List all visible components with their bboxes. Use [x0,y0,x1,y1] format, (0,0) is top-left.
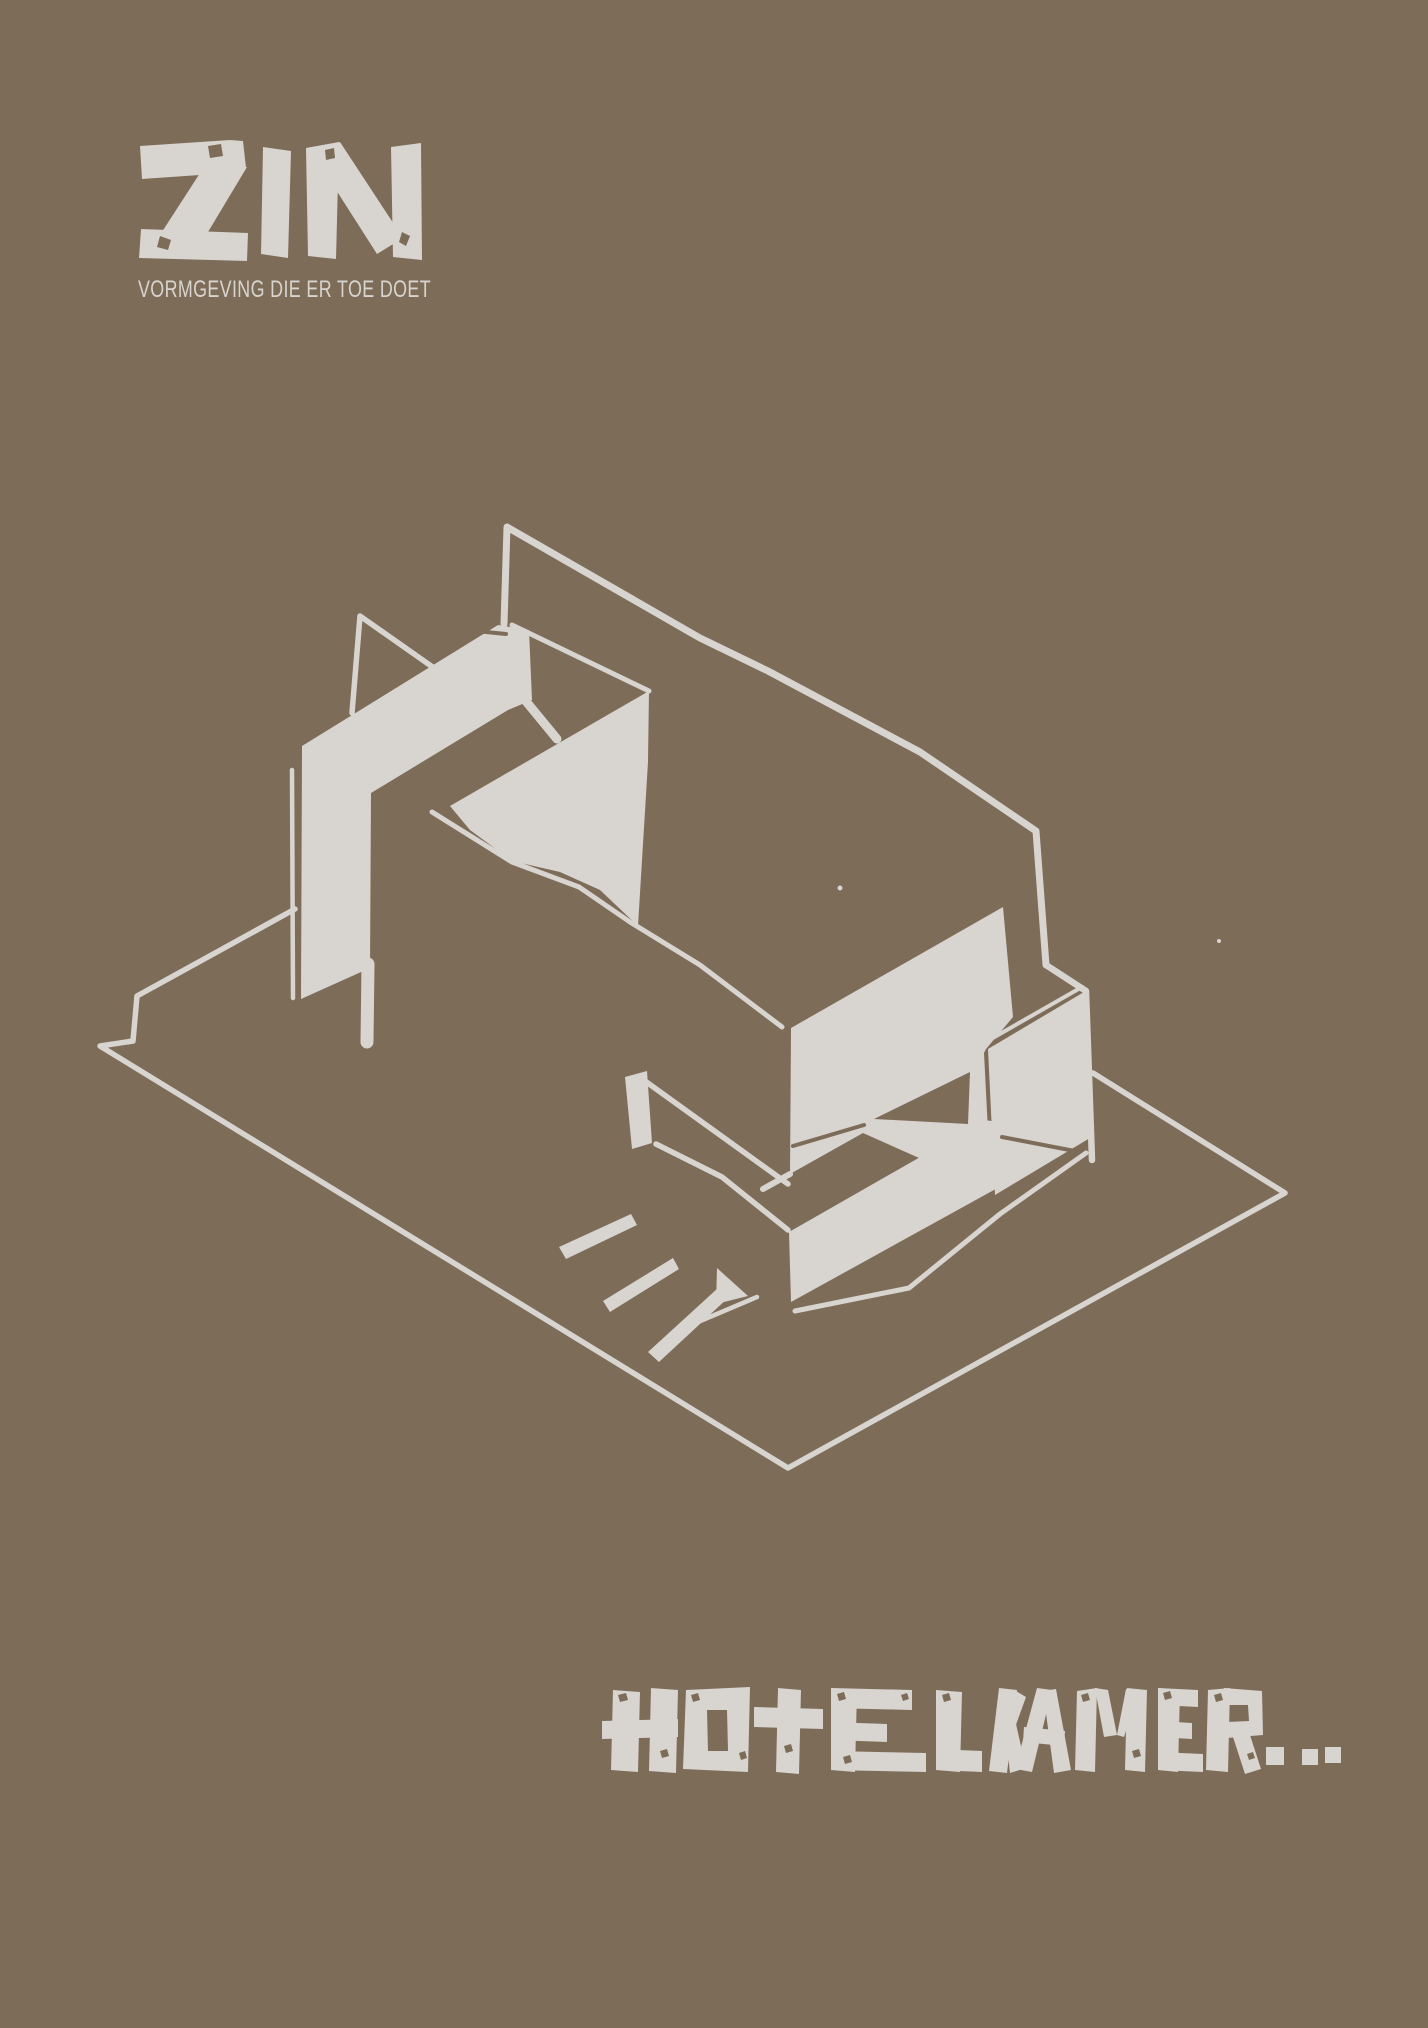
svg-text:VORMGEVING DIE ER TOE DOET: VORMGEVING DIE ER TOE DOET [138,276,431,303]
